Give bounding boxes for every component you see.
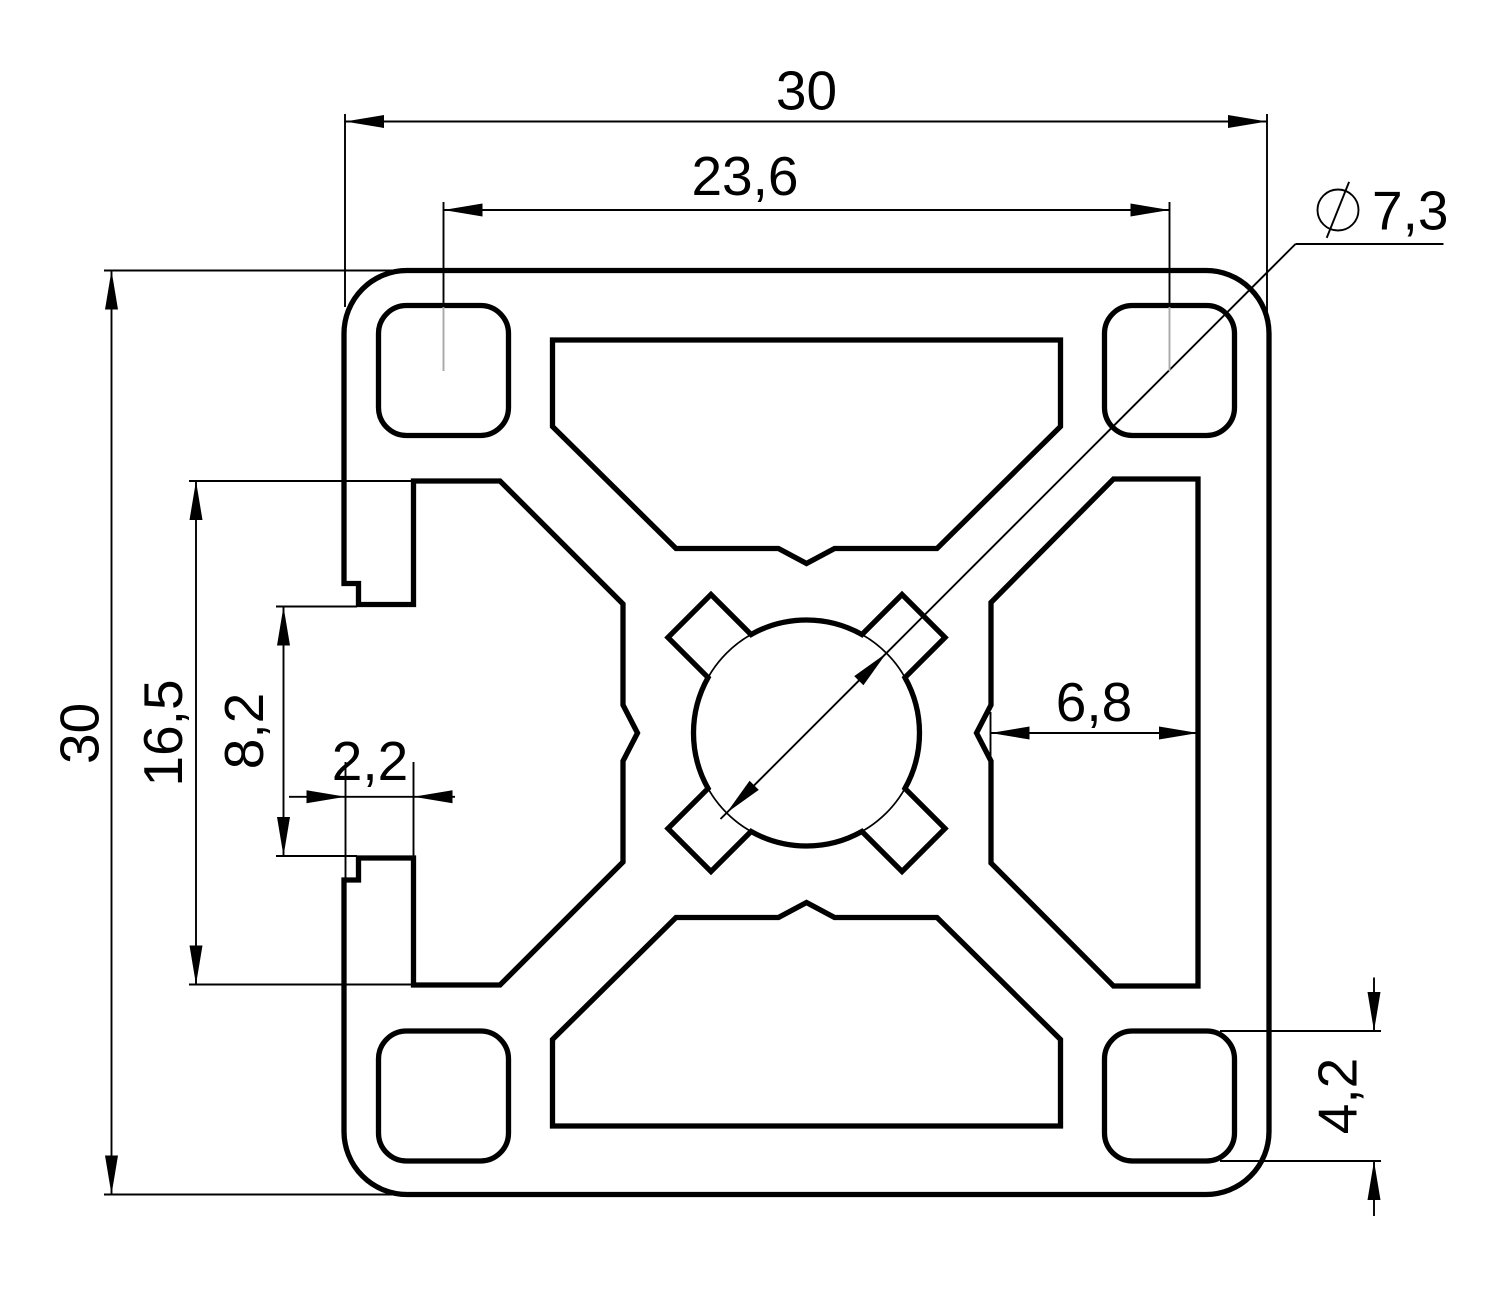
svg-text:6,8: 6,8 [1056,671,1132,733]
svg-text:2,2: 2,2 [332,730,408,792]
svg-text:8,2: 8,2 [213,693,275,769]
svg-text:4,2: 4,2 [1307,1058,1369,1134]
svg-text:23,6: 23,6 [691,145,798,207]
svg-text:30: 30 [49,703,111,764]
svg-text:16,5: 16,5 [132,679,194,786]
svg-text:30: 30 [776,60,837,122]
svg-text:7,3: 7,3 [1372,180,1448,242]
